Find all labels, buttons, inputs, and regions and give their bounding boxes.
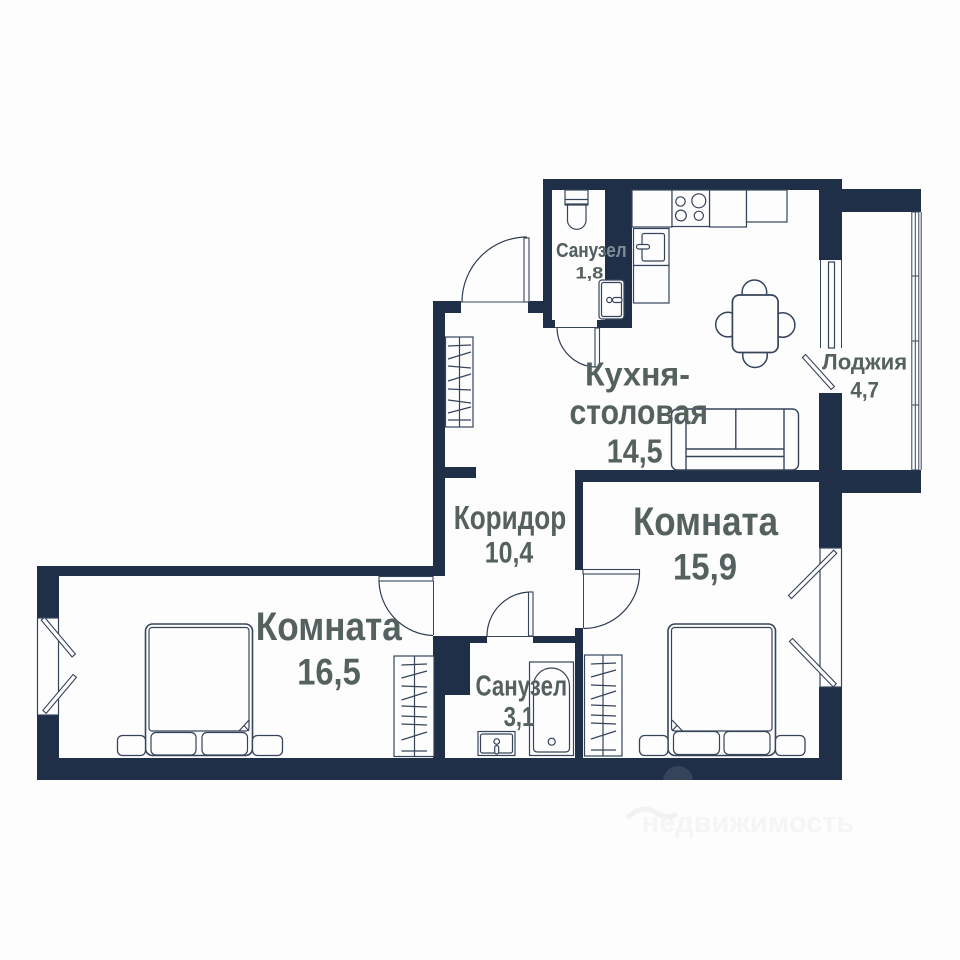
svg-text:Коридор: Коридор [454, 499, 567, 536]
svg-text:15,9: 15,9 [673, 547, 737, 588]
svg-text:Кухня-: Кухня- [585, 356, 690, 393]
svg-text:Лоджия: Лоджия [822, 350, 907, 375]
svg-text:4,7: 4,7 [850, 378, 879, 403]
svg-text:Санузел: Санузел [476, 671, 568, 703]
svg-text:недвижимость: недвижимость [642, 807, 855, 839]
svg-text:1,8: 1,8 [575, 264, 603, 283]
svg-text:3,1: 3,1 [504, 701, 535, 732]
svg-text:Комната: Комната [256, 605, 403, 649]
svg-text:столовая: столовая [569, 393, 708, 432]
svg-text:14,5: 14,5 [607, 433, 663, 470]
svg-text:Комната: Комната [633, 500, 779, 544]
svg-text:16,5: 16,5 [297, 652, 361, 693]
svg-text:10,4: 10,4 [485, 537, 534, 570]
